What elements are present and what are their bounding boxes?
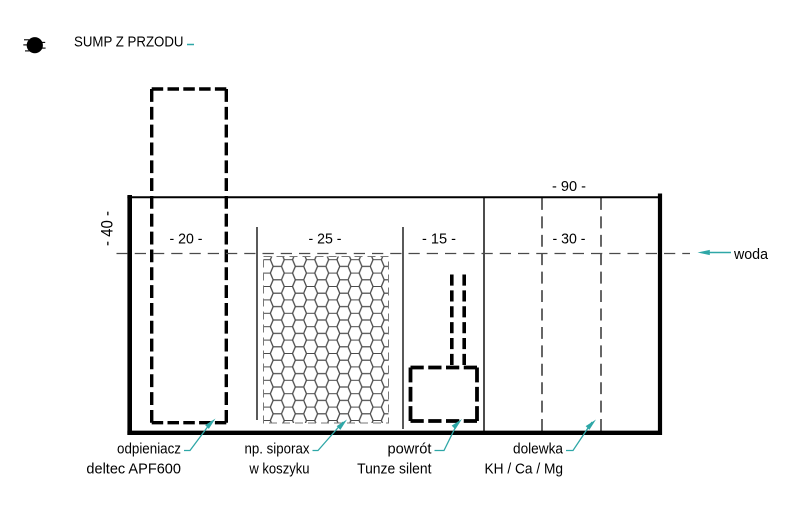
svg-text:- 15 -: - 15 - — [422, 232, 456, 248]
svg-text:KH / Ca / Mg: KH / Ca / Mg — [485, 461, 564, 477]
svg-text:deltec APF600: deltec APF600 — [86, 461, 181, 477]
svg-text:powrót: powrót — [388, 442, 432, 458]
svg-text:woda: woda — [733, 247, 769, 263]
svg-text:Tunze silent: Tunze silent — [357, 461, 431, 477]
svg-text:- 90 -: - 90 - — [552, 179, 586, 195]
svg-text:- 30 -: - 30 - — [553, 232, 586, 248]
svg-text:odpieniacz: odpieniacz — [117, 442, 181, 458]
svg-text:dolewka: dolewka — [513, 442, 564, 458]
svg-text:w koszyku: w koszyku — [249, 461, 310, 477]
svg-text:- 40 -: - 40 - — [98, 211, 117, 246]
svg-text:- 20 -: - 20 - — [170, 232, 203, 248]
svg-text:np. siporax: np. siporax — [245, 442, 311, 458]
svg-text:- 25 -: - 25 - — [309, 232, 342, 248]
svg-text:SUMP Z PRZODU: SUMP Z PRZODU — [74, 35, 184, 51]
